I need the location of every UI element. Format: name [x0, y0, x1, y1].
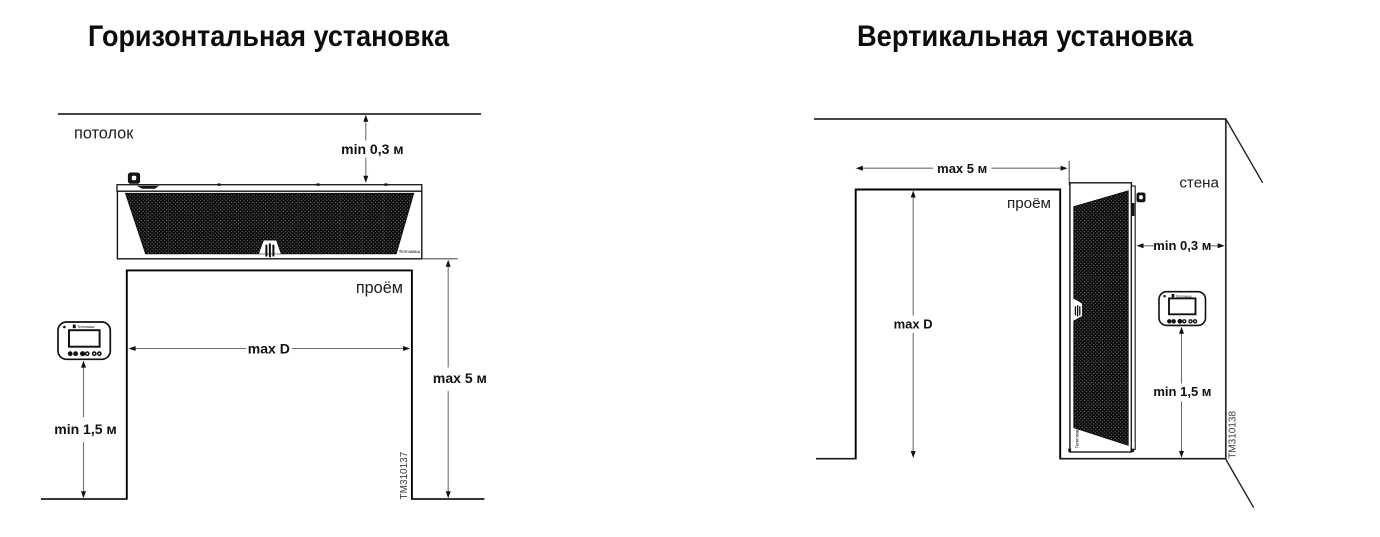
svg-text:Тепломаш: Тепломаш [1074, 427, 1079, 449]
svg-text:min 1,5 м: min 1,5 м [1153, 384, 1211, 399]
svg-text:max 5 м: max 5 м [433, 370, 487, 386]
svg-text:max D: max D [894, 316, 933, 331]
svg-text:min 1,5 м: min 1,5 м [54, 421, 117, 437]
svg-text:потолок: потолок [74, 125, 134, 143]
svg-text:Тепломаш: Тепломаш [399, 249, 421, 254]
svg-text:max 5 м: max 5 м [937, 161, 987, 176]
svg-text:Тепломаш: Тепломаш [77, 325, 95, 329]
svg-text:проём: проём [1007, 195, 1051, 212]
svg-text:Вертикальная установка: Вертикальная установка [857, 20, 1193, 53]
svg-text:TM310138: TM310138 [1227, 411, 1238, 459]
svg-text:стена: стена [1179, 175, 1219, 192]
svg-text:TM310137: TM310137 [399, 451, 410, 499]
svg-text:min 0,3 м: min 0,3 м [1153, 238, 1211, 253]
svg-text:Горизонтальная установка: Горизонтальная установка [88, 20, 449, 53]
svg-text:проём: проём [356, 279, 403, 297]
svg-text:max D: max D [248, 341, 290, 357]
svg-text:min 0,3 м: min 0,3 м [341, 141, 404, 157]
